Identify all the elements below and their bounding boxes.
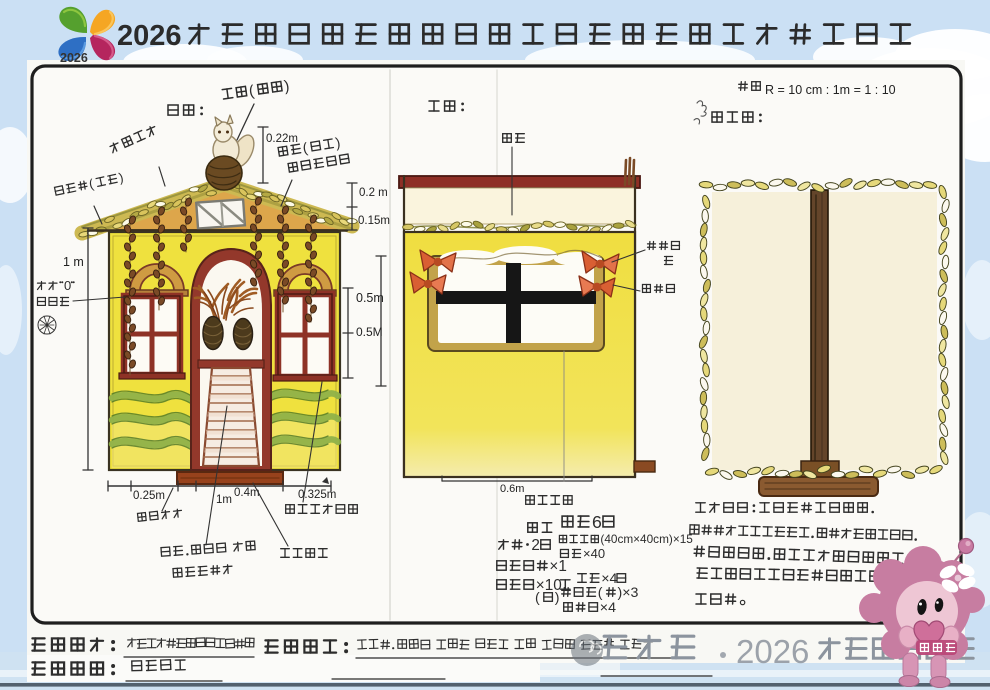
svg-text:6: 6 — [592, 512, 602, 532]
svg-text:×4: ×4 — [601, 571, 617, 587]
svg-text:×1: ×1 — [549, 558, 566, 575]
svg-text:0.6m: 0.6m — [500, 483, 524, 495]
svg-text:2026: 2026 — [60, 51, 88, 65]
svg-text:): ) — [555, 590, 560, 606]
svg-text:2026: 2026 — [117, 20, 182, 52]
svg-text:0.22m: 0.22m — [266, 133, 298, 145]
svg-text:(: ( — [598, 585, 603, 601]
svg-text:2026: 2026 — [736, 633, 809, 670]
svg-text:(: ( — [535, 590, 540, 606]
svg-text:×40: ×40 — [583, 546, 605, 561]
svg-text:)×3: )×3 — [618, 585, 639, 601]
svg-text:0.25m: 0.25m — [133, 490, 165, 502]
svg-text:0.15m: 0.15m — [358, 215, 390, 227]
svg-text:0.5M: 0.5M — [356, 325, 383, 339]
svg-text:(40cm×40cm)×15: (40cm×40cm)×15 — [600, 532, 693, 546]
svg-text:1m: 1m — [216, 494, 232, 506]
svg-text:×4: ×4 — [600, 600, 616, 616]
svg-text:0.2 m: 0.2 m — [359, 187, 388, 199]
svg-text:2: 2 — [531, 537, 540, 554]
svg-text:1 m: 1 m — [63, 255, 84, 269]
svg-text:0: 0 — [64, 278, 71, 293]
svg-text:R = 10 cm : 1m = 1 : 10: R = 10 cm : 1m = 1 : 10 — [765, 83, 896, 97]
svg-text:0.5m: 0.5m — [356, 291, 384, 305]
